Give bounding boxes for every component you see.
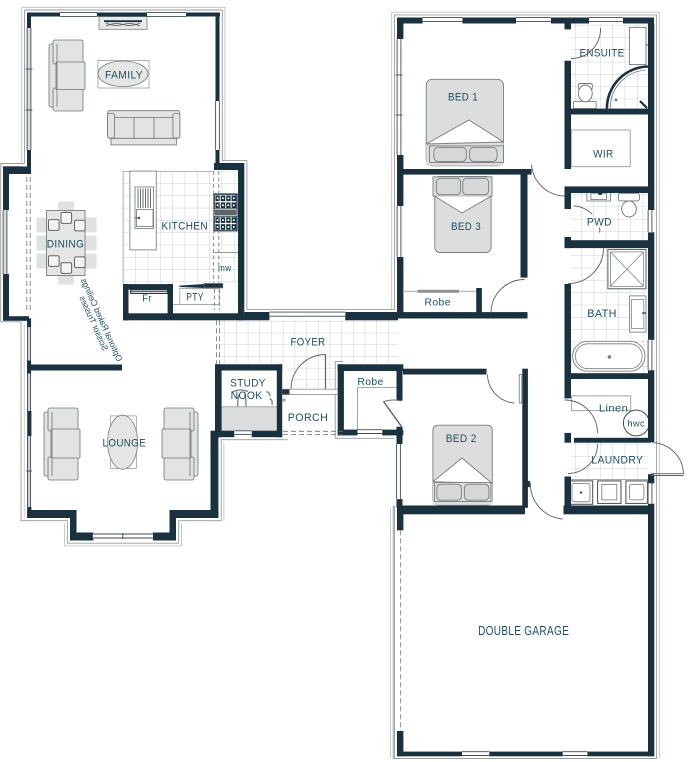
svg-text:LOUNGE: LOUNGE [103, 438, 147, 450]
svg-text:STUDY: STUDY [230, 377, 266, 389]
svg-text:PORCH: PORCH [288, 412, 329, 424]
svg-text:WIR: WIR [593, 148, 614, 160]
svg-text:hwc: hwc [628, 419, 646, 429]
svg-text:mw: mw [218, 263, 232, 274]
svg-text:NOOK: NOOK [231, 390, 263, 402]
svg-text:BED 3: BED 3 [451, 221, 481, 233]
svg-text:Linen: Linen [599, 403, 629, 415]
svg-text:DINING: DINING [47, 239, 85, 251]
svg-text:DOUBLE GARAGE: DOUBLE GARAGE [478, 624, 569, 638]
svg-text:Fr: Fr [142, 294, 152, 305]
svg-text:PTY: PTY [186, 292, 204, 304]
svg-text:ENSUITE: ENSUITE [580, 47, 625, 59]
svg-text:KITCHEN: KITCHEN [161, 220, 208, 232]
svg-text:LAUNDRY: LAUNDRY [591, 454, 643, 466]
svg-text:FAMILY: FAMILY [105, 69, 143, 81]
svg-text:BED 1: BED 1 [448, 92, 478, 104]
svg-text:PWD: PWD [587, 217, 612, 229]
svg-text:FOYER: FOYER [291, 337, 326, 349]
svg-text:Robe: Robe [425, 297, 451, 309]
svg-text:BED 2: BED 2 [446, 433, 477, 445]
svg-text:Robe: Robe [357, 376, 383, 388]
svg-text:BATH: BATH [587, 308, 617, 320]
